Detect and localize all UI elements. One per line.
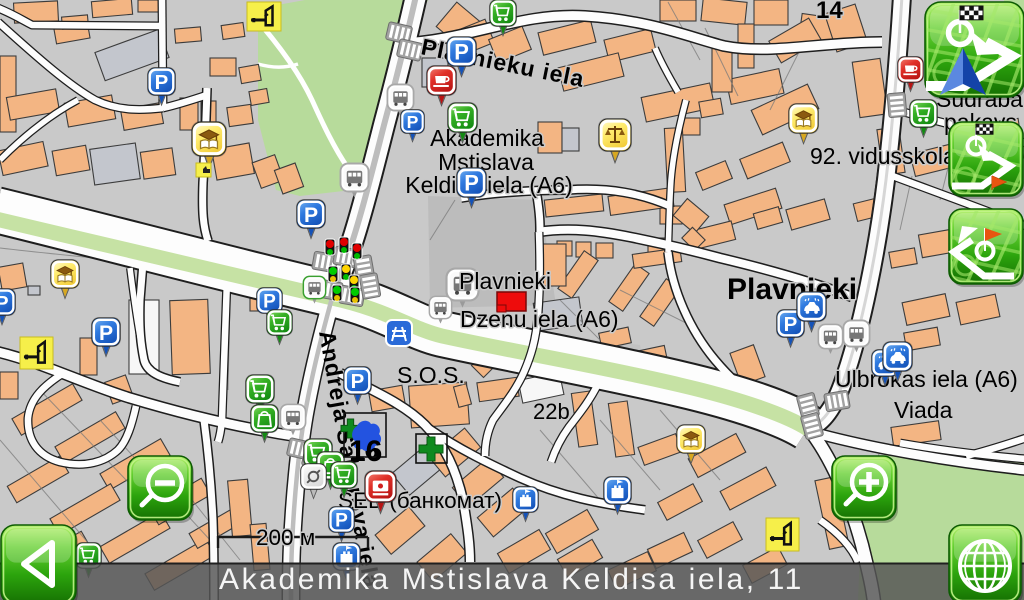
svg-text:P: P xyxy=(454,40,469,65)
svg-text:Dzenu iela (A6): Dzenu iela (A6) xyxy=(460,306,619,332)
svg-text:16: 16 xyxy=(349,435,382,468)
svg-text:P: P xyxy=(304,204,318,227)
svg-text:P: P xyxy=(335,511,348,532)
svg-text:Plavnieki: Plavnieki xyxy=(727,273,857,306)
svg-text:200 м: 200 м xyxy=(256,525,315,550)
svg-text:14: 14 xyxy=(816,0,843,24)
svg-text:Ulbrokas iela (A6): Ulbrokas iela (A6) xyxy=(835,366,1018,392)
svg-text:P: P xyxy=(0,292,9,314)
svg-text:S.O.S.: S.O.S. xyxy=(397,362,465,388)
svg-text:SEB (банкомат): SEB (банкомат) xyxy=(338,488,502,513)
svg-text:Akademika: Akademika xyxy=(430,125,544,151)
svg-text:P: P xyxy=(99,322,113,345)
svg-text:92. vidusskola: 92. vidusskola xyxy=(810,143,956,169)
svg-text:22b: 22b xyxy=(533,399,570,424)
svg-text:P: P xyxy=(784,313,798,336)
svg-text:Viada: Viada xyxy=(894,397,953,423)
svg-text:P: P xyxy=(351,370,365,393)
svg-text:Plavnieki: Plavnieki xyxy=(459,268,551,294)
svg-text:Akademika Mstislava Keldisa ie: Akademika Mstislava Keldisa iela, 11 xyxy=(219,563,804,596)
svg-text:P: P xyxy=(155,71,169,94)
svg-text:P: P xyxy=(464,171,479,196)
svg-text:P: P xyxy=(407,112,419,132)
svg-text:Keldisa iela (A6): Keldisa iela (A6) xyxy=(405,172,572,198)
